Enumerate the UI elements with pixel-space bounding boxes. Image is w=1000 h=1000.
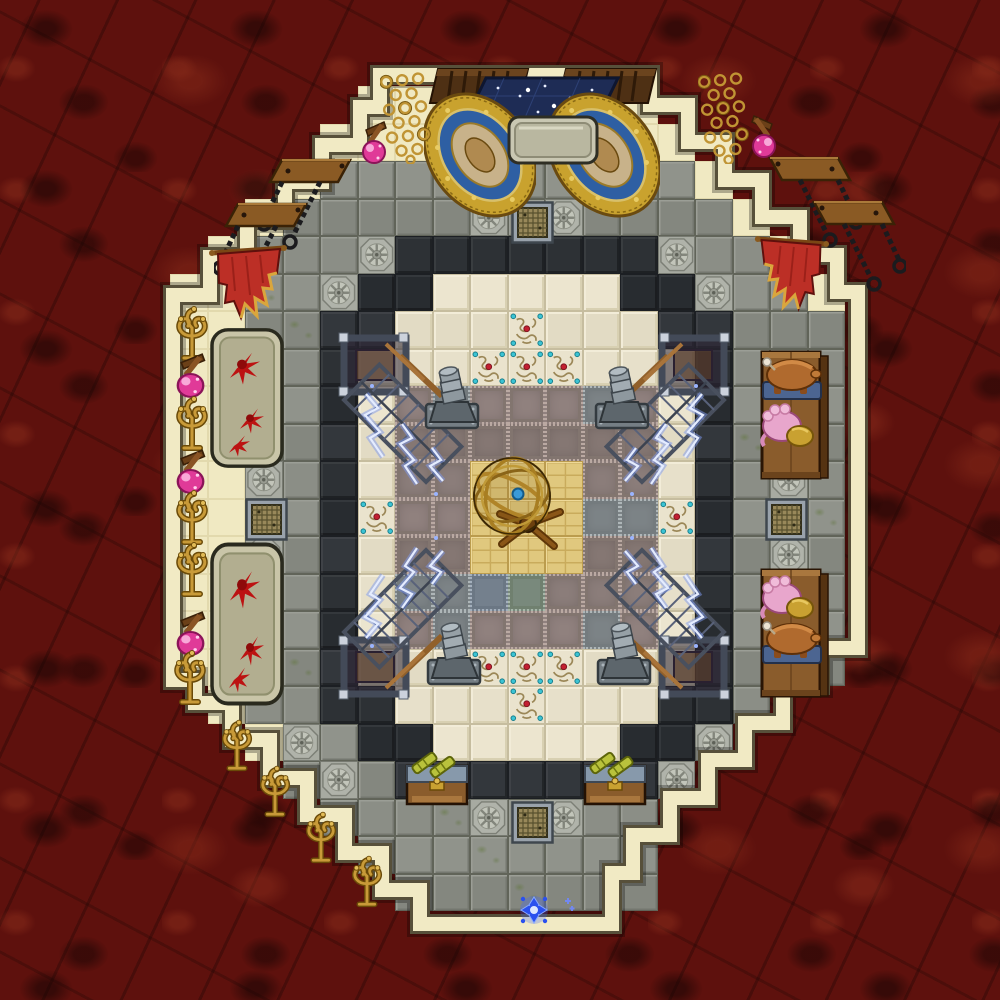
dark-floor-tile[interactable] (470, 236, 508, 274)
stone-floor-tile[interactable] (695, 236, 733, 274)
rosette-tile[interactable] (358, 236, 396, 274)
dark-floor-tile[interactable] (545, 761, 583, 799)
roast-animal-icon (760, 354, 824, 406)
pink-creature-e2[interactable] (758, 574, 816, 624)
stone-floor-tile[interactable] (283, 536, 321, 574)
walkway-tile[interactable] (733, 199, 771, 237)
stone-floor-tile[interactable] (358, 199, 396, 237)
dark-floor-tile[interactable] (395, 236, 433, 274)
stone-floor-tile[interactable] (358, 799, 396, 837)
marble-floor-tile[interactable] (508, 274, 546, 312)
walkway-tile[interactable] (658, 124, 696, 162)
gold-candelabra-sw2[interactable] (254, 762, 296, 818)
gold-candelabra-icon (168, 646, 212, 706)
gold-candelabra-icon (170, 538, 214, 598)
wall-torch-nw[interactable] (358, 116, 396, 166)
glyph-tile[interactable] (508, 686, 546, 724)
riveted-plate-tile[interactable] (545, 386, 583, 424)
dark-floor-tile[interactable] (395, 274, 433, 312)
machine-bollard-se[interactable] (596, 622, 652, 688)
magic-glyph-icon (509, 350, 545, 386)
machine-bollard-icon (596, 622, 652, 688)
sewer-grate-east[interactable] (765, 498, 808, 541)
red-banner-icon (208, 243, 290, 337)
stone-altar-icon (505, 113, 601, 167)
gold-candelabra-icon (170, 486, 214, 546)
magic-glyph-icon (509, 650, 545, 686)
machine-bollard-nw[interactable] (424, 366, 480, 432)
marble-floor-tile[interactable] (545, 274, 583, 312)
magic-glyph-icon (546, 350, 582, 386)
green-steel-tile[interactable] (508, 574, 546, 612)
machine-bollard-ne[interactable] (594, 366, 650, 432)
rosette-tile[interactable] (320, 274, 358, 312)
grate-icon (765, 498, 808, 541)
roast-animal-e1[interactable] (760, 354, 824, 406)
blue-sparkle (560, 896, 576, 916)
rosette-tile[interactable] (283, 724, 321, 762)
grate-icon (511, 801, 554, 844)
walkway-tile[interactable] (695, 161, 733, 199)
rosette-tile[interactable] (658, 236, 696, 274)
rosette-icon (659, 237, 695, 273)
stone-floor-tile[interactable] (395, 836, 433, 874)
sewer-grate-west[interactable] (245, 498, 288, 541)
stone-floor-tile[interactable] (283, 499, 321, 537)
red-banner-icon (752, 234, 830, 328)
marble-floor-tile[interactable] (470, 274, 508, 312)
stone-floor-tile[interactable] (320, 724, 358, 762)
blood-trough-upper[interactable] (208, 326, 286, 470)
rosette-icon (284, 725, 320, 761)
gold-candelabra-icon (216, 716, 258, 772)
gold-candelabra-sw4[interactable] (346, 852, 388, 908)
stone-floor-tile[interactable] (620, 874, 658, 912)
gold-candelabra-w5[interactable] (168, 646, 212, 706)
glyph-tile[interactable] (508, 649, 546, 687)
rosette-icon (659, 762, 695, 798)
rosette-icon (321, 275, 357, 311)
dark-floor-tile[interactable] (620, 236, 658, 274)
dark-floor-tile[interactable] (470, 761, 508, 799)
stone-floor-tile[interactable] (283, 686, 321, 724)
dark-floor-tile[interactable] (358, 724, 396, 762)
stone-floor-tile[interactable] (470, 874, 508, 912)
roast-animal-icon (760, 618, 824, 670)
riveted-plate-tile[interactable] (508, 611, 546, 649)
gold-candelabra-sw3[interactable] (300, 808, 342, 864)
gold-candelabra-w4[interactable] (170, 538, 214, 598)
marble-floor-tile[interactable] (433, 274, 471, 312)
rosette-icon (359, 237, 395, 273)
pink-creature-icon (758, 574, 816, 624)
glyph-tile[interactable] (545, 349, 583, 387)
torch-icon (358, 116, 396, 166)
dungeon-map (0, 0, 1000, 1000)
gold-candelabra-w2[interactable] (170, 392, 214, 452)
dark-floor-tile[interactable] (358, 274, 396, 312)
stone-floor-tile[interactable] (358, 161, 396, 199)
marble-floor-tile[interactable] (545, 311, 583, 349)
stone-floor-tile[interactable] (283, 349, 321, 387)
riveted-plate-tile[interactable] (545, 611, 583, 649)
blue-rune-icon (518, 894, 550, 926)
rosette-tile[interactable] (320, 761, 358, 799)
stone-floor-tile[interactable] (658, 199, 696, 237)
pink-creature-icon (758, 402, 816, 452)
stone-floor-tile[interactable] (358, 761, 396, 799)
machine-bollard-sw[interactable] (426, 622, 482, 688)
dark-floor-tile[interactable] (658, 274, 696, 312)
stone-altar[interactable] (505, 113, 601, 167)
stone-floor-tile[interactable] (433, 874, 471, 912)
rosette-tile[interactable] (695, 274, 733, 312)
blood-trough-icon (208, 540, 286, 708)
rosette-tile[interactable] (470, 799, 508, 837)
gold-candelabra-sw1[interactable] (216, 716, 258, 772)
gold-candelabra-icon (300, 808, 342, 864)
roast-animal-e2[interactable] (760, 618, 824, 670)
stone-floor-tile[interactable] (433, 836, 471, 874)
marble-floor-tile[interactable] (508, 724, 546, 762)
rosette-tile[interactable] (658, 761, 696, 799)
gold-candelabra-icon (346, 852, 388, 908)
marble-floor-tile[interactable] (470, 724, 508, 762)
telescope-table-sw[interactable] (404, 748, 470, 808)
dark-floor-tile[interactable] (620, 274, 658, 312)
riveted-plate-tile[interactable] (545, 574, 583, 612)
stone-floor-tile[interactable] (283, 574, 321, 612)
stone-floor-tile[interactable] (283, 424, 321, 462)
armillary-sphere[interactable] (466, 450, 570, 554)
rosette-icon (321, 762, 357, 798)
stone-floor-tile[interactable] (470, 836, 508, 874)
stone-floor-tile[interactable] (695, 199, 733, 237)
dark-floor-tile[interactable] (583, 236, 621, 274)
telescope-table-icon (404, 748, 470, 808)
glyph-tile[interactable] (508, 349, 546, 387)
sewer-grate-south[interactable] (511, 801, 554, 844)
stone-floor-tile[interactable] (583, 874, 621, 912)
armillary-sphere-icon (466, 450, 570, 554)
stone-floor-tile[interactable] (395, 874, 433, 912)
glyph-tile[interactable] (545, 649, 583, 687)
marble-floor-tile[interactable] (545, 724, 583, 762)
stone-floor-tile[interactable] (808, 499, 846, 537)
blood-trough-lower[interactable] (208, 540, 286, 708)
glyph-tile[interactable] (508, 311, 546, 349)
riveted-plate-tile[interactable] (508, 386, 546, 424)
gold-candelabra-icon (254, 762, 296, 818)
telescope-table-icon (582, 748, 648, 808)
marble-floor-tile[interactable] (545, 686, 583, 724)
stone-floor-tile[interactable] (583, 836, 621, 874)
grate-icon (245, 498, 288, 541)
pink-creature-e1[interactable] (758, 402, 816, 452)
machine-bollard-icon (424, 366, 480, 432)
rosette-tile[interactable] (695, 724, 733, 762)
stone-floor-tile[interactable] (283, 461, 321, 499)
red-banner-ne[interactable] (752, 234, 830, 328)
torch-icon (742, 110, 780, 160)
gold-candelabra-w3[interactable] (170, 486, 214, 546)
gold-candelabra-icon (170, 392, 214, 452)
red-banner-nw[interactable] (208, 243, 290, 337)
dark-floor-tile[interactable] (508, 761, 546, 799)
stone-floor-tile[interactable] (283, 611, 321, 649)
magic-glyph-icon (509, 312, 545, 348)
rosette-icon (696, 275, 732, 311)
dark-floor-tile[interactable] (658, 724, 696, 762)
machine-bollard-icon (426, 622, 482, 688)
magic-glyph-icon (509, 687, 545, 723)
stone-floor-tile[interactable] (658, 161, 696, 199)
stone-floor-tile[interactable] (283, 386, 321, 424)
sparkle-icon (560, 896, 576, 916)
machine-bollard-icon (594, 366, 650, 432)
marble-floor-tile[interactable] (583, 274, 621, 312)
stone-floor-tile[interactable] (620, 836, 658, 874)
telescope-table-se[interactable] (582, 748, 648, 808)
blue-rune-field (518, 894, 550, 926)
magic-glyph-icon (546, 650, 582, 686)
rosette-icon (696, 725, 732, 761)
stone-floor-tile[interactable] (283, 649, 321, 687)
wall-torch-ne[interactable] (742, 110, 780, 160)
blood-trough-icon (208, 326, 286, 470)
rosette-icon (471, 800, 507, 836)
dark-floor-tile[interactable] (433, 236, 471, 274)
